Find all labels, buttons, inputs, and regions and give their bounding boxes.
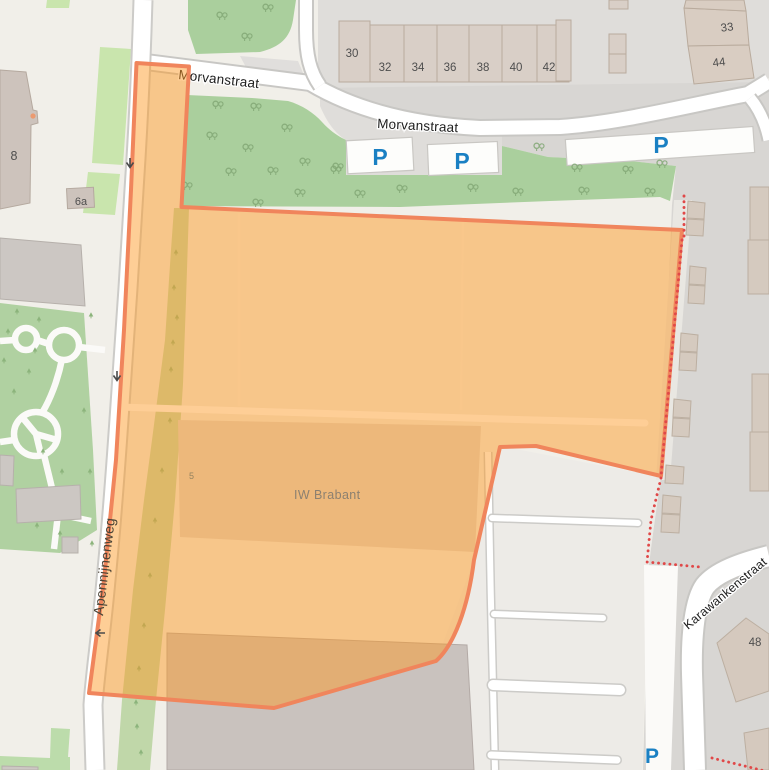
svg-text:P: P (645, 745, 659, 768)
svg-text:40: 40 (510, 62, 523, 74)
svg-text:5: 5 (189, 471, 194, 481)
svg-text:P: P (372, 144, 387, 170)
svg-text:42: 42 (543, 62, 556, 74)
svg-text:33: 33 (720, 21, 734, 34)
svg-text:36: 36 (444, 62, 457, 74)
svg-text:8: 8 (11, 149, 18, 163)
svg-text:34: 34 (412, 62, 425, 74)
svg-text:44: 44 (712, 56, 727, 70)
svg-text:32: 32 (379, 62, 392, 74)
svg-text:6a: 6a (75, 196, 88, 208)
svg-text:48: 48 (749, 637, 762, 649)
svg-text:38: 38 (477, 62, 490, 74)
svg-text:IW Brabant: IW Brabant (294, 488, 361, 502)
svg-text:P: P (653, 132, 668, 158)
svg-text:30: 30 (346, 48, 359, 60)
svg-text:P: P (454, 148, 469, 174)
